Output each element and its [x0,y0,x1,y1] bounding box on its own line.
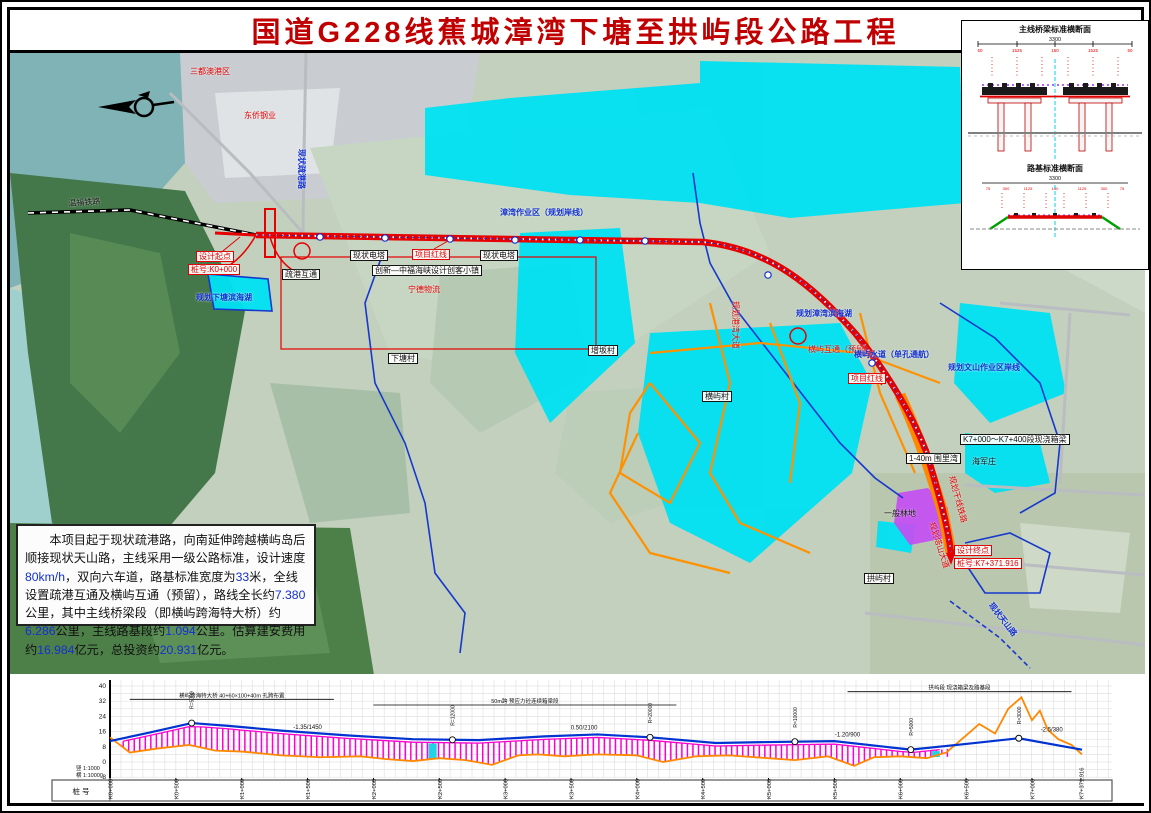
map-label: 桩号:K7+371.916 [954,558,1022,569]
cross-section-panel: 主线桥梁标准横断面 3300 50 1525 150 1525 50 [961,20,1149,270]
svg-text:横 1:10000: 横 1:10000 [76,771,103,779]
svg-text:1525: 1525 [1088,48,1099,53]
svg-text:K2+000: K2+000 [372,779,378,799]
profile-chart: 4032241680-8竖 1:1000横 1:10000R=5000R=120… [10,674,1145,803]
drawing-sheet: 国道G228线蕉城漳湾下塘至拱屿段公路工程 [7,7,1144,806]
map-label: 1-40m 围里湾 [906,453,961,464]
map-label: 现状电塔 [480,250,518,261]
svg-text:16: 16 [99,729,107,736]
svg-text:3300: 3300 [1049,176,1061,182]
map-label: 横屿水道（单孔通航） [854,350,934,359]
map-label: 规划干线铁路 [947,475,968,524]
svg-text:桩 号: 桩 号 [72,786,89,796]
svg-text:R=10000: R=10000 [793,707,799,728]
cross-section-art: 主线桥梁标准横断面 3300 50 1525 150 1525 50 [962,21,1148,269]
svg-text:1125: 1125 [1078,186,1087,191]
svg-text:K1+000: K1+000 [240,779,246,799]
svg-text:拱屿段 现浇箱梁及路基段: 拱屿段 现浇箱梁及路基段 [928,684,991,692]
map-label: 现状天山路 [987,601,1019,638]
map-label: 现状电塔 [350,250,388,261]
svg-text:K5+000: K5+000 [767,779,773,799]
map-label: 增坂村 [588,345,618,356]
map-label: 规划下塘滨海湖 [196,293,252,302]
map-label: 规划文山作业区岸线 [948,363,1020,372]
svg-text:K3+000: K3+000 [504,779,510,799]
map-label: 规划漳湾滨海湖 [796,309,852,318]
svg-text:K0+500: K0+500 [174,779,180,799]
bridge-cross-section: 主线桥梁标准横断面 3300 50 1525 150 1525 50 [968,24,1142,159]
map-label: 温福铁路 [68,197,101,208]
map-label: 拱屿村 [864,573,894,584]
svg-text:75: 75 [986,186,991,191]
svg-text:K4+500: K4+500 [701,779,707,799]
svg-text:K0+000: K0+000 [109,779,115,799]
svg-text:R=20000: R=20000 [648,703,654,724]
svg-text:50: 50 [977,48,983,53]
svg-text:24: 24 [99,713,107,720]
svg-text:-1.20/900: -1.20/900 [835,732,861,738]
svg-text:1125: 1125 [1024,186,1033,191]
svg-text:R=3000: R=3000 [1017,706,1023,724]
svg-text:K4+000: K4+000 [635,779,641,799]
svg-text:40: 40 [99,683,107,690]
svg-text:8: 8 [102,744,106,751]
map-label: 三都澳港区 [190,67,230,76]
svg-text:K2+500: K2+500 [438,779,444,799]
map-label: 宁德物流 [408,285,440,294]
map-label: 桩号:K0+000 [188,264,240,275]
svg-text:-1.35/1450: -1.35/1450 [293,725,322,731]
svg-text:K3+500: K3+500 [569,779,575,799]
svg-text:K6+500: K6+500 [965,779,971,799]
svg-text:K5+500: K5+500 [833,779,839,799]
svg-text:300: 300 [1101,186,1108,191]
svg-text:50m跨 预应力砼连续箱梁段: 50m跨 预应力砼连续箱梁段 [491,697,559,705]
map-label: 疏港互通 [282,269,320,280]
map-label: 规划港湾大道 [731,301,740,349]
map-label: 下塘村 [388,353,418,364]
map-label: 规划塔山大道 [927,521,950,569]
svg-text:K7+000: K7+000 [1030,779,1036,799]
map-label: 项目红线 [412,249,450,260]
svg-text:300: 300 [1003,186,1010,191]
drawing-sheet-outer: 国道G228线蕉城漳湾下塘至拱屿段公路工程 [0,0,1151,813]
svg-text:50: 50 [1127,48,1133,53]
svg-text:横屿跨海特大桥 40+60×100+40m 孔跨布置: 横屿跨海特大桥 40+60×100+40m 孔跨布置 [179,691,285,699]
map-label: 东侨钢业 [244,111,276,120]
svg-text:0: 0 [102,759,106,766]
svg-text:K7+371.916: K7+371.916 [1079,768,1085,799]
map-label: 横屿村 [702,391,732,402]
map-label: 设计终点 [954,545,992,556]
project-description-box: 本项目起于现状疏港路，向南延伸跨越横屿岛后顺接现状天山路，主线采用一级公路标准，… [16,524,316,626]
svg-text:K6+000: K6+000 [899,779,905,799]
map-label: 项目红线 [848,373,886,384]
map-label: 现状疏港路 [297,149,306,189]
svg-text:R=5000: R=5000 [909,718,915,736]
svg-text:75: 75 [1120,186,1125,191]
map-label: 设计起点 [196,251,234,262]
svg-text:竖 1:1000: 竖 1:1000 [76,764,100,772]
svg-text:R=12000: R=12000 [450,705,456,726]
svg-text:1525: 1525 [1012,48,1023,53]
page-title: 国道G228线蕉城漳湾下塘至拱屿段公路工程 [252,9,900,51]
svg-text:-2.5/380: -2.5/380 [1041,728,1064,734]
bridge-xsec-title: 主线桥梁标准横断面 [1019,24,1091,34]
map-label: K7+000～K7+400段现浇箱梁 [960,434,1070,445]
embankment-cross-section: 路基标准横断面 3300 75 300 1125 150 1125 300 75 [970,163,1140,237]
profile-svg: 4032241680-8竖 1:1000横 1:10000R=5000R=120… [10,674,1145,803]
svg-text:K1+500: K1+500 [306,779,312,799]
svg-text:150: 150 [1051,48,1059,53]
map-label: 海军庄 [972,457,996,466]
project-description-text: 本项目起于现状疏港路，向南延伸跨越横屿岛后顺接现状天山路，主线采用一级公路标准，… [25,531,307,659]
map-label: 创新—中福海峡设计创客小镇 [372,265,482,276]
map-label: 一般林地 [884,509,916,518]
svg-text:32: 32 [99,698,107,705]
svg-text:0.50/2100: 0.50/2100 [571,726,598,732]
map-label: 漳湾作业区（规划岸线） [500,208,588,217]
embankment-xsec-title: 路基标准横断面 [1027,163,1083,173]
